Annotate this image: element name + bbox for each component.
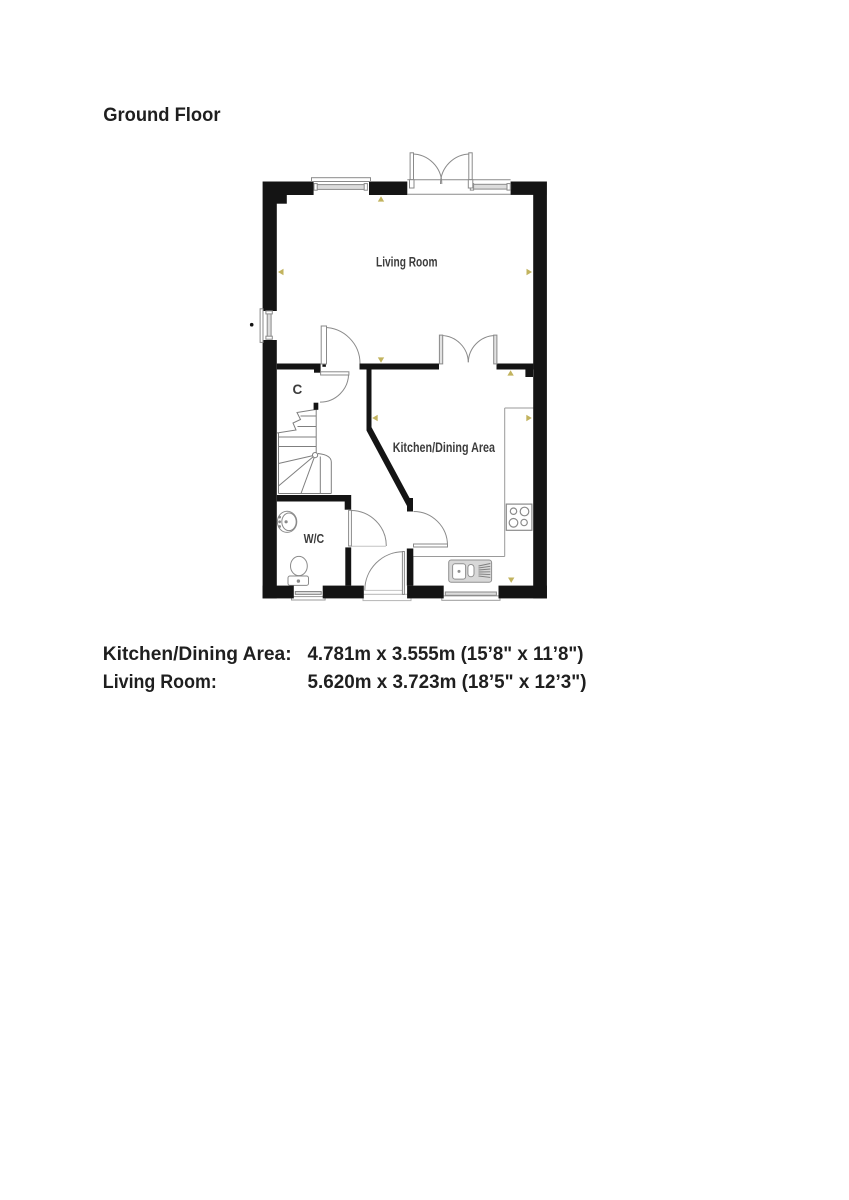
svg-text:Ground Floor: Ground Floor <box>103 105 221 126</box>
svg-text:Living Room: Living Room <box>376 254 438 269</box>
svg-text:C: C <box>293 382 303 397</box>
svg-text:Living Room:: Living Room: <box>103 672 217 693</box>
svg-text:Kitchen/Dining Area: Kitchen/Dining Area <box>393 440 496 455</box>
svg-text:5.620m x 3.723m (18’5" x 12’3": 5.620m x 3.723m (18’5" x 12’3") <box>308 672 587 693</box>
svg-text:Kitchen/Dining Area:: Kitchen/Dining Area: <box>103 644 292 665</box>
svg-text:W/C: W/C <box>304 532 325 546</box>
svg-text:4.781m x 3.555m (15’8" x 11’8": 4.781m x 3.555m (15’8" x 11’8") <box>308 644 584 665</box>
